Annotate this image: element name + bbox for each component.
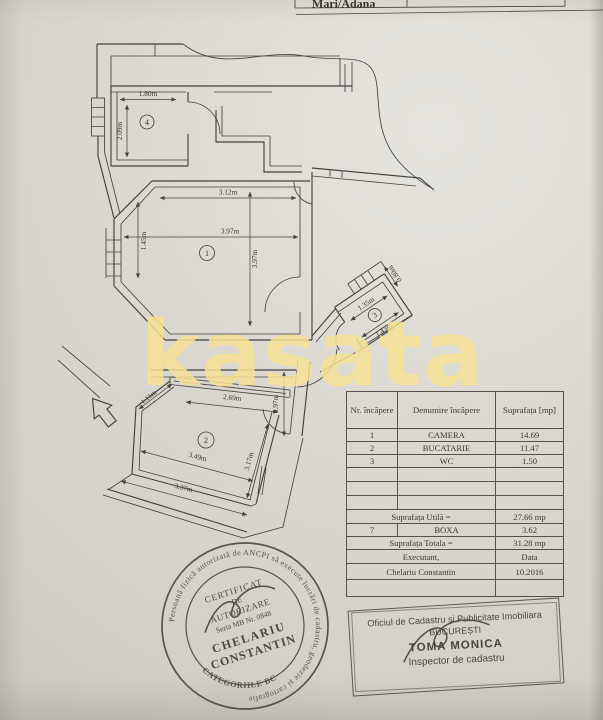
cell-name: CAMERA: [398, 429, 496, 442]
header-suprafata: Suprafața [mp]: [496, 392, 564, 429]
header-nr: Nr. încăpere: [347, 392, 398, 429]
cell-area: 1.50: [496, 455, 564, 468]
dim-r3-side: 0.80m: [386, 263, 404, 284]
cell-name: BUCATARIE: [398, 442, 496, 455]
cell-nr: 3: [347, 455, 398, 468]
dim-r2-bottom: 3.37m: [174, 481, 194, 495]
boundary-fragment: [58, 346, 110, 398]
top-strip-partial-text: Mari/Adana: [312, 0, 375, 11]
dim-r1-top: 3.12m: [219, 188, 238, 197]
office-stamp-inner-border: Oficiul de Cadastru și Publicitate Imobi…: [351, 602, 561, 692]
top-cropped-table-row: Mari/Adana: [295, 0, 603, 15]
dim-r1-width: 3.97m: [221, 227, 240, 236]
window-hatch-room3: [348, 261, 388, 293]
room-4-dimensions: 1.80m 2.09m 4: [115, 89, 176, 157]
boxa-row: 7 BOXA 3.62: [347, 524, 564, 537]
cell-area: 11.47: [496, 442, 564, 455]
totala-label: Suprafața Totala =: [347, 537, 496, 550]
totala-row: Suprafața Totala = 31.28 mp: [347, 537, 564, 550]
executant-name-row: Chelariu Constantin 10.2016: [347, 564, 564, 580]
site-boundary-wavy-line: [183, 44, 433, 189]
dim-r1-height: 3.97m: [250, 249, 259, 268]
scanned-cadastral-document: Mari/Adana: [0, 0, 603, 720]
table-row: 3 WC 1.50: [347, 455, 564, 468]
north-arrow-icon: [84, 392, 121, 431]
cell-area: 14.69: [496, 429, 564, 442]
date-value: 10.2016: [496, 564, 564, 580]
room-2-number: 2: [204, 436, 208, 445]
office-stamp: Oficiul de Cadastru și Publicitate Imobi…: [348, 597, 565, 696]
executant-row: Executant, Data: [347, 550, 564, 564]
table-row: 1 CAMERA 14.69: [347, 429, 564, 442]
utila-row: Suprafața Utilă = 27.66 mp: [347, 510, 564, 524]
dim-r2-mid: 3.49m: [188, 450, 208, 464]
dim-r1-left: 1.45m: [139, 231, 148, 250]
cell-nr: 2: [347, 442, 398, 455]
cell-nr: 7: [347, 524, 398, 537]
door-arc-room4: [188, 102, 220, 134]
totala-value: 31.28 mp: [496, 537, 564, 550]
table-empty-row: [347, 468, 564, 482]
table-header-row: Nr. încăpere Denumire încăpere Suprafața…: [347, 392, 564, 429]
executant-name: Chelariu Constantin: [347, 564, 496, 580]
cell-nr: 1: [347, 429, 398, 442]
room-areas-table: Nr. încăpere Denumire încăpere Suprafața…: [346, 391, 564, 597]
cell-name: WC: [398, 455, 496, 468]
watermark: kasata: [140, 310, 485, 400]
cell-name: BOXA: [398, 524, 496, 537]
table-empty-row: [347, 482, 564, 496]
table-empty-row: [347, 580, 564, 597]
utila-value: 27.66 mp: [496, 510, 564, 524]
dim-r4-width: 1.80m: [139, 89, 158, 98]
room-4-number: 4: [145, 118, 149, 127]
door-arc-corridor: [294, 182, 312, 204]
dim-r2-right: 3.17m: [242, 451, 256, 472]
header-denumire: Denumire încăpere: [398, 392, 496, 429]
cell-area: 3.62: [496, 524, 564, 537]
executant-label: Executant,: [347, 550, 496, 564]
data-label: Data: [496, 550, 564, 564]
table-row: 2 BUCATARIE 11.47: [347, 442, 564, 455]
room-1-number: 1: [205, 249, 209, 258]
table-empty-row: [347, 496, 564, 510]
utila-label: Suprafața Utilă =: [347, 510, 496, 524]
dim-r4-height: 2.09m: [115, 121, 124, 140]
surveyor-round-stamp: Persoană fizică autorizată de ANCPI să e…: [162, 543, 328, 709]
